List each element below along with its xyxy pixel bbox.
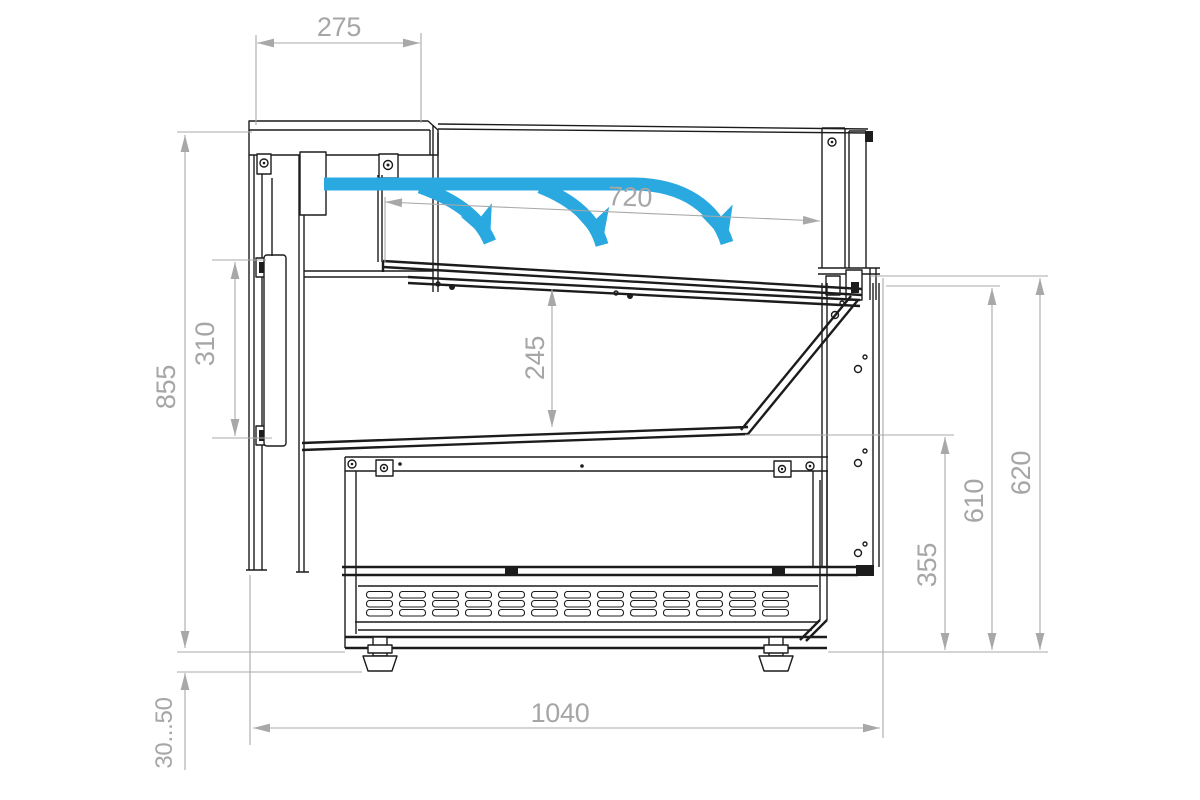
dimension-display-opening: 720	[385, 181, 820, 262]
refrigerated-well	[302, 296, 858, 450]
canopy	[249, 121, 438, 155]
dimension-body-height-label: 855	[151, 365, 181, 409]
dimension-overall-depth-label: 1040	[531, 698, 590, 728]
airflow-arrow-2	[540, 187, 602, 245]
display-counter-section-drawing: 275 720 855 310 245 355	[0, 0, 1200, 800]
display-deck	[383, 261, 862, 306]
dimension-deck-to-floor: 610	[886, 286, 1000, 650]
dimension-well-depth: 245	[520, 289, 552, 427]
adjustable-feet	[363, 637, 793, 671]
dimension-deck-to-floor-label: 610	[959, 479, 989, 523]
airflow-arrow-1	[420, 187, 490, 242]
bumper-rail	[342, 565, 874, 576]
dimension-well-depth-label: 245	[520, 336, 550, 380]
dimension-display-opening-label: 720	[607, 181, 652, 213]
dimension-canopy-depth: 275	[256, 12, 421, 125]
dimension-front-height: 620	[870, 276, 1048, 650]
dimension-body-height: 855	[151, 132, 252, 648]
front-glass	[822, 128, 873, 268]
base-plinth	[345, 457, 828, 648]
display-top-frame	[438, 124, 868, 133]
front-panel	[822, 283, 879, 567]
dimension-base-front-height-label: 355	[912, 543, 942, 587]
ventilation-grille	[355, 586, 818, 630]
dimension-foot-adjust-range: 30...50	[151, 652, 1048, 770]
dimension-canopy-depth-label: 275	[317, 12, 361, 42]
dimension-rear-panel-height: 310	[190, 260, 272, 438]
dimension-foot-adjust-range-label: 30...50	[151, 697, 178, 768]
dimension-rear-panel-height-label: 310	[190, 322, 220, 366]
dimension-front-height-label: 620	[1006, 451, 1036, 495]
rear-access-panel	[256, 255, 286, 446]
technical-drawing-page: 275 720 855 310 245 355	[0, 0, 1200, 800]
